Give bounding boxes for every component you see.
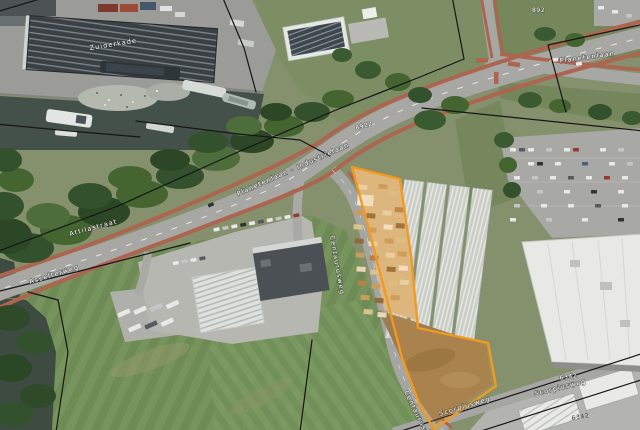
aerial-photo-canvas: Zuiderkade Attilastraat Asselterweg Plan… bbox=[0, 0, 640, 430]
map-viewport[interactable]: Zuiderkade Attilastraat Asselterweg Plan… bbox=[0, 0, 640, 430]
parcel-number-label: 892 bbox=[532, 7, 545, 14]
